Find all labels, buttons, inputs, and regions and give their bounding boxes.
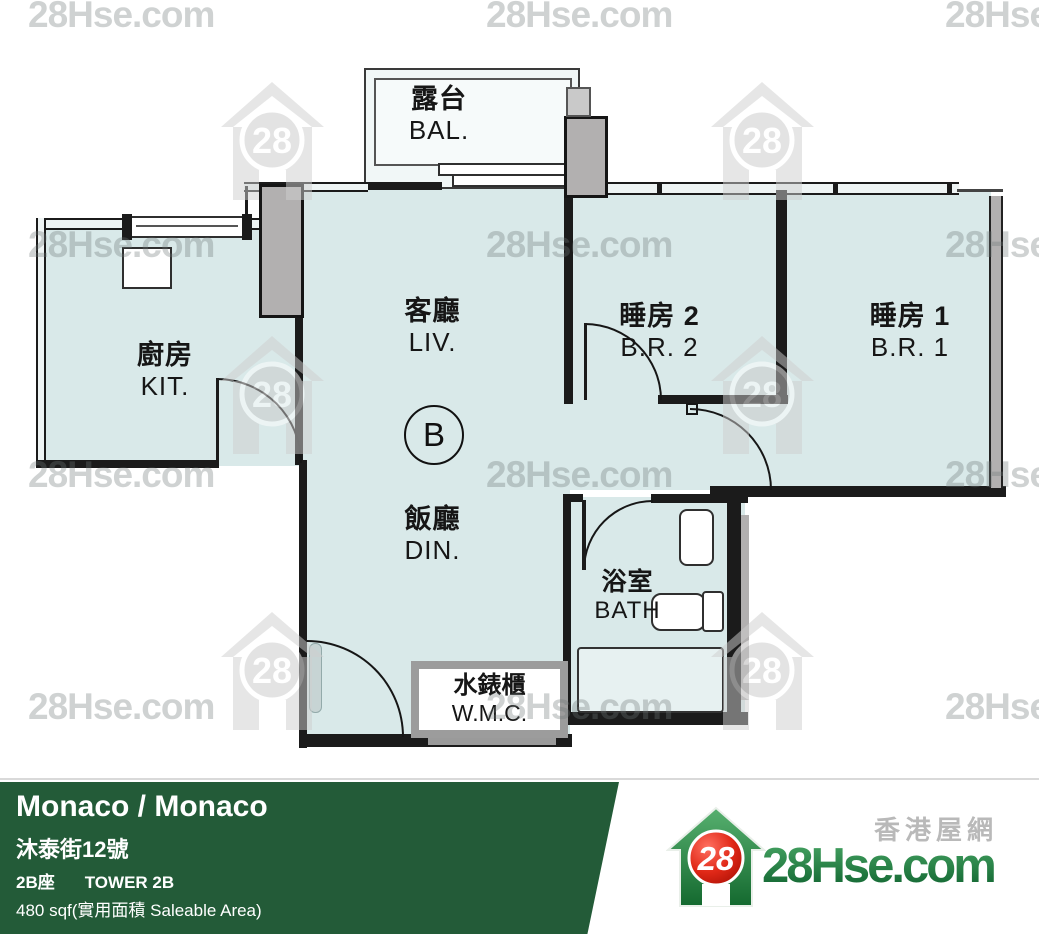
- wall: [727, 497, 741, 715]
- wall: [563, 494, 583, 502]
- estate-address: 沐泰街12號: [16, 832, 128, 864]
- pillar: [566, 87, 591, 117]
- wall: [36, 218, 46, 468]
- site-logo-text: 28Hse.com: [762, 838, 994, 894]
- bedroom1-label: 睡房 1 B.R. 1: [840, 301, 980, 362]
- tower-info: 2B座TOWER 2B: [16, 868, 174, 893]
- info-bar: Monaco / Monaco 沐泰街12號 2B座TOWER 2B 480 s…: [0, 778, 1039, 934]
- pillar: [259, 184, 304, 318]
- svg-text:28: 28: [252, 650, 292, 691]
- wall: [741, 515, 749, 700]
- kitchen-sink: [122, 247, 172, 289]
- wall: [428, 737, 556, 745]
- balcony-sliding-door: [452, 174, 576, 187]
- wall: [36, 218, 128, 230]
- living-label: 客廳 LIV.: [375, 296, 490, 357]
- watermark-text: 28Hse.com: [28, 0, 214, 36]
- window-line: [957, 189, 1003, 192]
- wall: [364, 182, 442, 190]
- tower-en: TOWER 2B: [85, 873, 174, 892]
- unit-marker: B: [404, 405, 464, 465]
- wall: [658, 395, 788, 404]
- floorplan-page: 水錶櫃 W.M.C. 露台 BAL. 廚房 KIT. 客廳 LIV. 飯廳 DI…: [0, 0, 1039, 934]
- wall-tick: [833, 184, 838, 193]
- wall: [36, 460, 219, 468]
- bedroom2-door-leaf: [584, 323, 587, 400]
- tower-zh: 2B座: [16, 873, 55, 892]
- dining-label: 飯廳 DIN.: [375, 504, 490, 565]
- svg-text:28: 28: [697, 840, 735, 877]
- estate-name: Monaco / Monaco: [16, 790, 268, 824]
- svg-text:28: 28: [252, 120, 292, 161]
- entrance-door-leaf: [309, 643, 322, 713]
- kitchen-window-line: [136, 225, 238, 227]
- wall: [563, 712, 748, 725]
- wall-tick: [947, 184, 952, 193]
- wall-tick: [657, 184, 662, 193]
- window-cap: [122, 214, 132, 240]
- wall: [776, 190, 787, 404]
- bathtub: [577, 647, 724, 713]
- wall: [564, 190, 573, 404]
- bedroom2-label: 睡房 2 B.R. 2: [592, 301, 727, 362]
- bathroom-label: 浴室 BATH: [565, 568, 690, 625]
- 28hse-logo-house-icon: 28: [666, 806, 766, 910]
- balcony-label: 露台 BAL.: [378, 84, 500, 145]
- watermark-text: 28Hse.com: [945, 0, 1039, 36]
- bedroom1-door-stub: [686, 403, 698, 415]
- watermark-text: 28Hse.com: [486, 0, 672, 36]
- watermark-text: 28Hse.com: [28, 686, 214, 728]
- wall: [299, 460, 307, 748]
- pillar: [564, 116, 608, 198]
- wmc-label: 水錶櫃 W.M.C.: [452, 672, 527, 727]
- wmc-cabinet: 水錶櫃 W.M.C.: [411, 661, 568, 738]
- kitchen-window: [126, 216, 248, 238]
- window-cap: [242, 214, 252, 240]
- bathroom-tap: [702, 591, 724, 632]
- saleable-area: 480 sqf(實用面積 Saleable Area): [16, 896, 262, 921]
- svg-text:28: 28: [742, 120, 782, 161]
- wall: [989, 196, 1003, 488]
- kitchen-label: 廚房 KIT.: [105, 340, 225, 401]
- bathroom-door-leaf: [582, 500, 586, 570]
- toilet: [679, 509, 714, 566]
- unit-marker-letter: B: [423, 416, 445, 454]
- watermark-text: 28Hse.com: [945, 686, 1039, 728]
